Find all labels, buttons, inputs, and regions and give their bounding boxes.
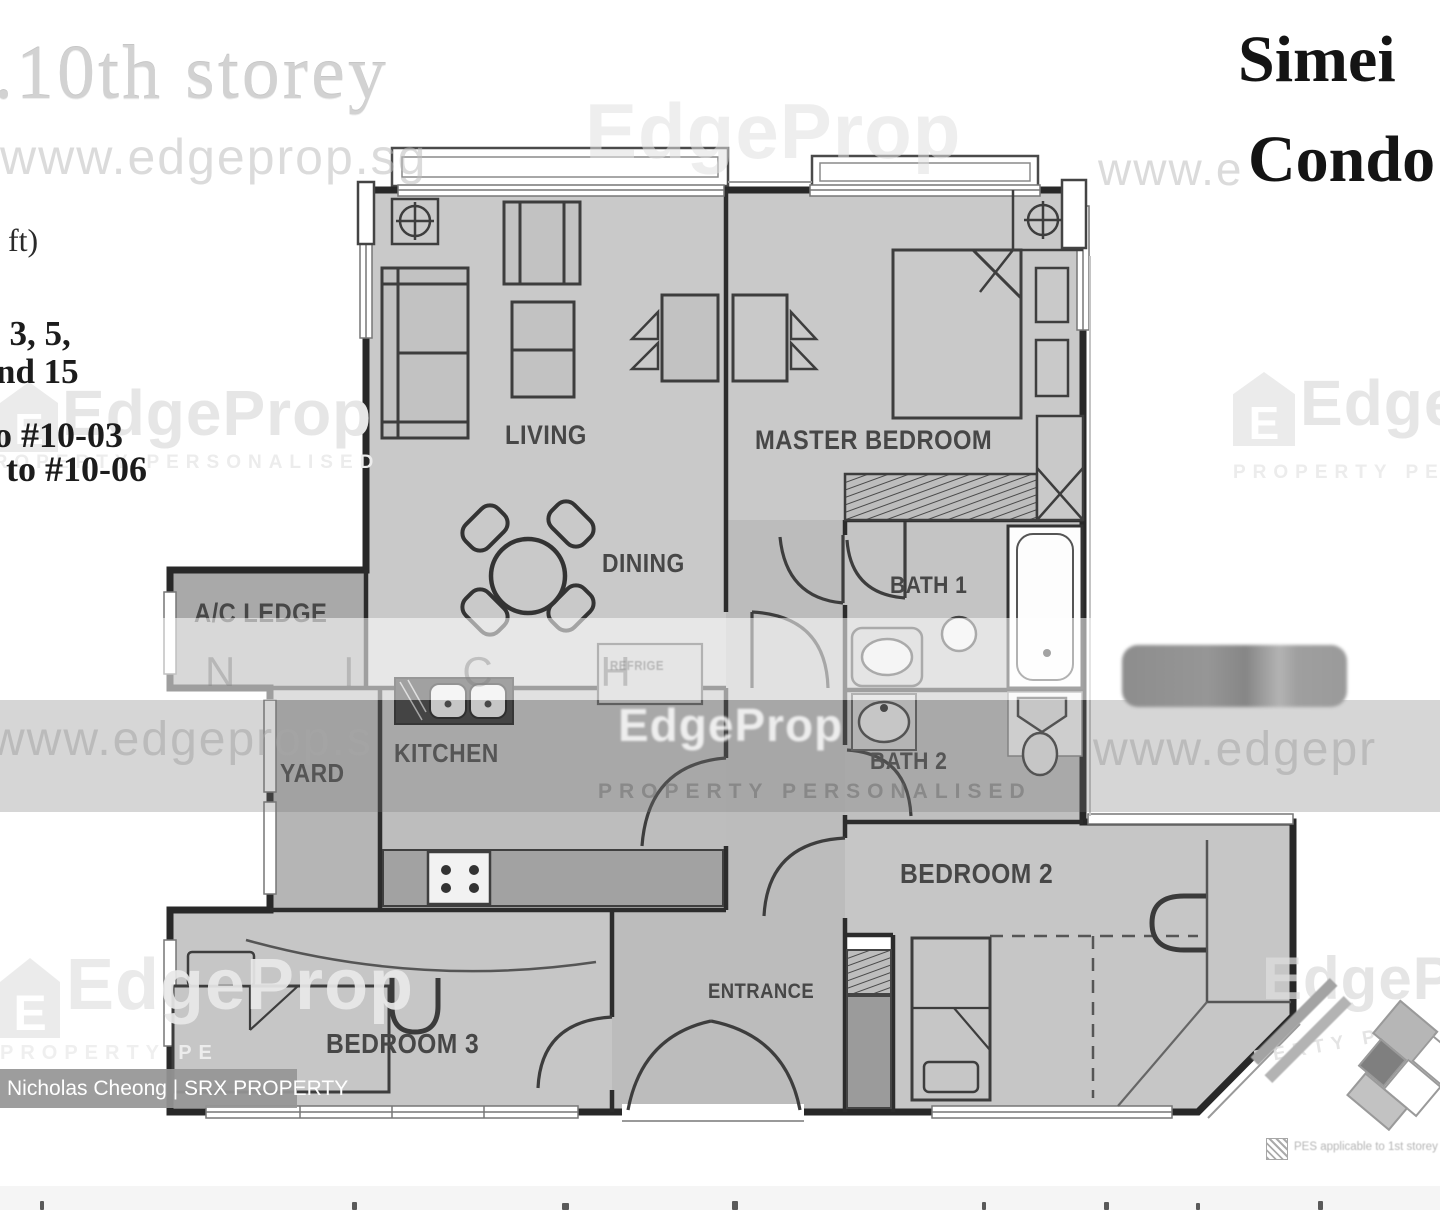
room-label-kitchen: KITCHEN [394,738,499,769]
room-label-bedroom3: BEDROOM 3 [326,1028,479,1060]
room-label-bath2: BATH 2 [870,748,947,776]
room-label-entrance: ENTRANCE [708,980,814,1004]
fragment-line1: , 3, 5, [0,314,71,354]
cut-letter-mark [1318,1201,1323,1210]
storey-title: .10th storey [0,30,389,117]
edgeprop-logo-letter-right: E [1249,400,1280,446]
floorplan-page: { "header": { "storey": ".10th storey", … [0,0,1440,1210]
room-label-bath1: BATH 1 [890,572,967,600]
fragment-sqft: q ft) [0,222,38,259]
fragment-line2: nd 15 [0,352,79,392]
redacted-smudge [1122,645,1347,707]
cut-letter-mark [40,1201,44,1210]
agent-badge-label: Nicholas Cheong | SRX PROPERTY [7,1077,348,1101]
planter-boxes [392,148,1038,188]
room-label-yard: YARD [280,758,345,789]
cut-letter-mark [732,1201,738,1210]
cut-letter-mark [982,1202,986,1210]
edgeprop-logo-letter-bottom-left: E [13,988,46,1038]
legend-pes-note: PES applicable to 1st storey only [1294,1141,1440,1153]
bottom-cutoff-strip [0,1186,1440,1210]
refrigerator [598,644,702,704]
project-title-line2: Condo [1248,122,1435,198]
refrigerator-label: REFRIGE [610,658,664,673]
cut-letter-mark [352,1202,357,1210]
room-label-living: LIVING [505,420,587,451]
cut-letter-mark [1196,1203,1200,1210]
cut-letter-mark [1104,1202,1109,1210]
agent-badge: Nicholas Cheong | SRX PROPERTY [0,1069,297,1108]
store-shelter [847,950,891,1108]
project-title-line1: Simei [1238,22,1396,98]
room-label-master-bedroom: MASTER BEDROOM [755,425,992,456]
room-label-bedroom2: BEDROOM 2 [900,858,1053,890]
legend-hatch-icon [1266,1138,1288,1160]
cut-letter-mark [562,1203,569,1210]
room-label-ac-ledge: A/C LEDGE [194,598,327,629]
fragment-line4: to #10-06 [6,448,147,490]
room-label-dining: DINING [602,548,685,579]
